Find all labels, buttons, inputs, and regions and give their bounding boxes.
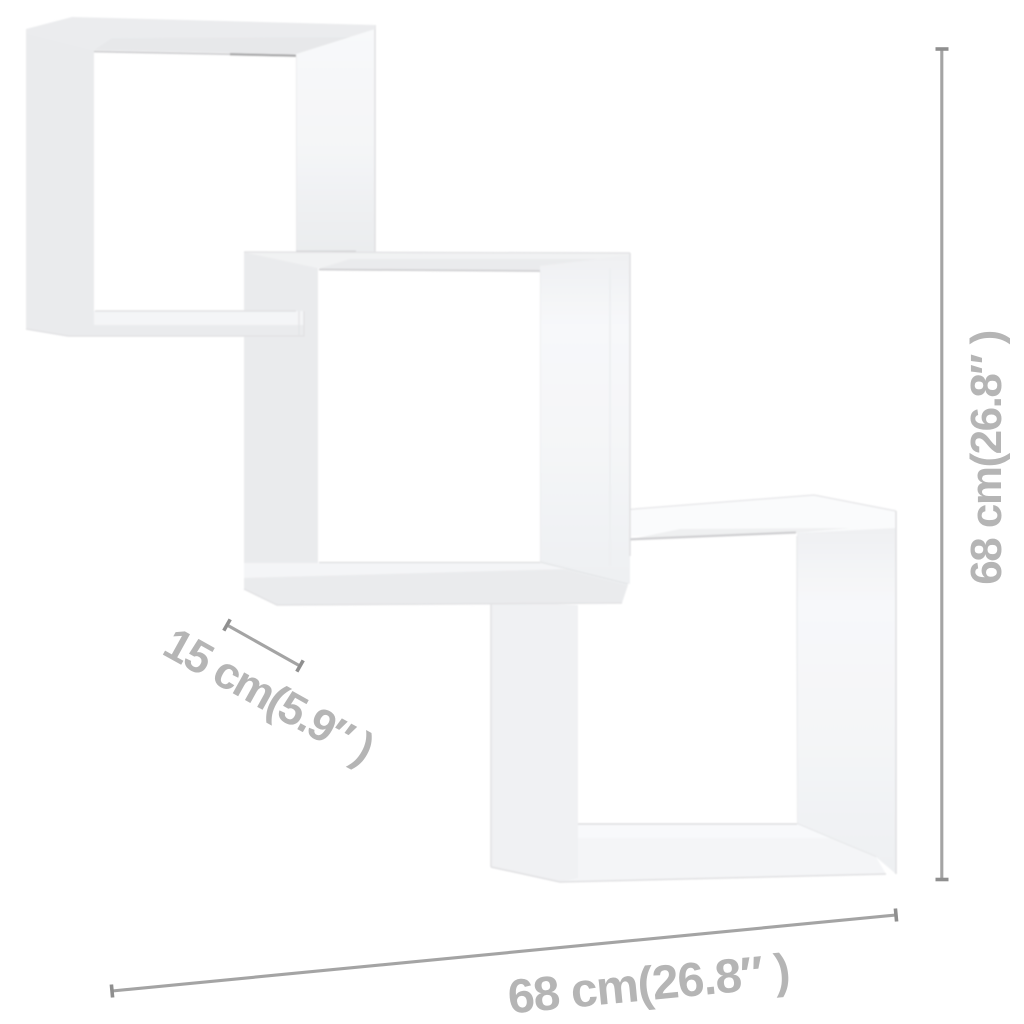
svg-text:68 cm(26.8″ ): 68 cm(26.8″ ) (962, 331, 1011, 585)
